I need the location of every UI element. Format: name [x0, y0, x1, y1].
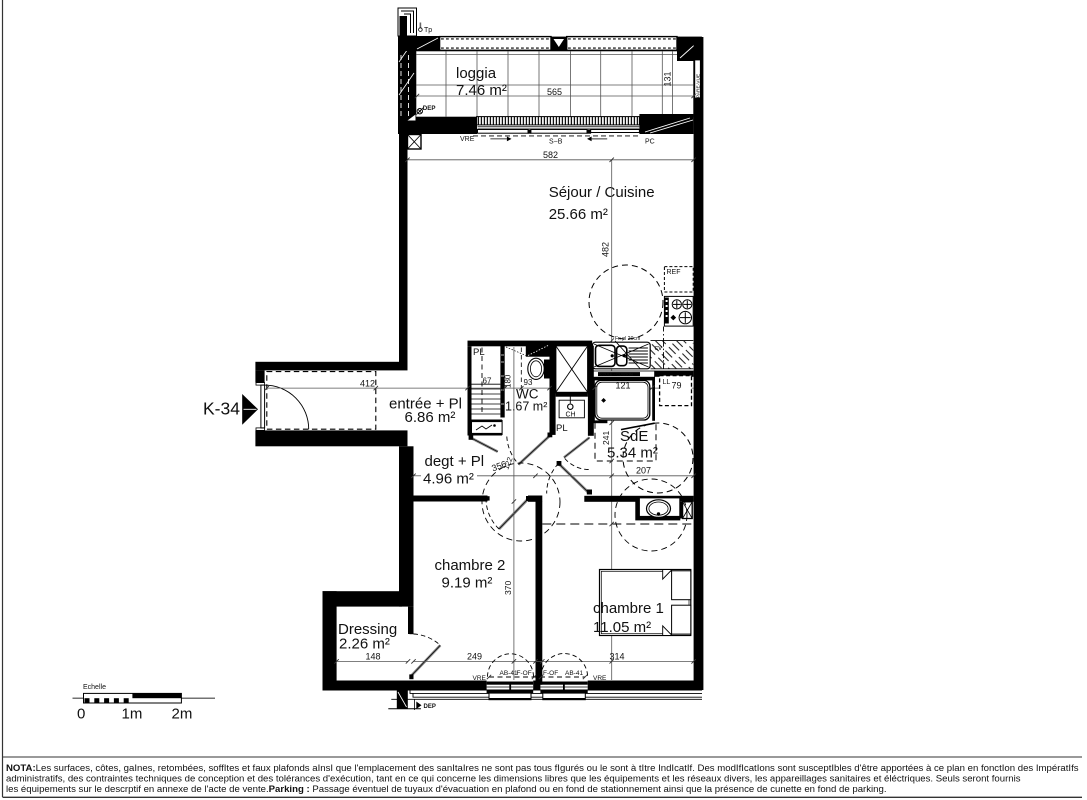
svg-text:VRE: VRE — [473, 675, 487, 682]
svg-text:cv: cv — [655, 343, 663, 352]
svg-text:administratifs, des contrainte: administratifs, des contraintes techniqu… — [6, 774, 1021, 785]
svg-text:K-34: K-34 — [203, 399, 240, 419]
svg-text:AB-41: AB-41 — [565, 670, 583, 677]
svg-text:PL: PL — [473, 347, 485, 358]
svg-text:S−B: S−B — [549, 139, 563, 146]
svg-text:241: 241 — [601, 431, 611, 445]
svg-text:AB-41: AB-41 — [500, 670, 518, 677]
svg-text:9.19 m²: 9.19 m² — [442, 575, 493, 592]
svg-text:565: 565 — [547, 87, 562, 97]
svg-text:11.05 m²: 11.05 m² — [593, 619, 651, 636]
svg-text:121: 121 — [616, 381, 631, 391]
svg-text:F-OF: F-OF — [543, 670, 558, 677]
svg-text:PARE-VUE: PARE-VUE — [696, 74, 702, 98]
svg-text:582: 582 — [543, 150, 558, 160]
svg-text:VRE: VRE — [593, 675, 607, 682]
svg-text:COULE – CUISSON: COULE – CUISSON — [600, 373, 633, 377]
svg-text:REF: REF — [667, 269, 681, 276]
svg-text:249: 249 — [467, 652, 482, 662]
svg-text:2.26 m²: 2.26 m² — [339, 636, 390, 653]
svg-text:les équipements sur le descrpt: les équipements sur le descrptif en anne… — [6, 784, 887, 795]
svg-text:412: 412 — [360, 378, 375, 388]
svg-text:67: 67 — [483, 377, 492, 386]
svg-text:2m: 2m — [172, 706, 193, 723]
svg-text:131: 131 — [663, 71, 673, 86]
svg-text:5.34 m²: 5.34 m² — [607, 445, 658, 462]
svg-text:chambre 1: chambre 1 — [593, 600, 664, 617]
svg-text:CH: CH — [566, 412, 576, 419]
svg-text:1.67 m²: 1.67 m² — [505, 400, 547, 414]
svg-text:F-OF: F-OF — [517, 670, 532, 677]
svg-text:25.66 m²: 25.66 m² — [549, 206, 608, 223]
svg-text:LL: LL — [663, 379, 671, 386]
svg-text:chambre 2: chambre 2 — [435, 557, 506, 574]
svg-text:7.46 m²: 7.46 m² — [456, 82, 507, 99]
svg-text:180: 180 — [504, 374, 513, 388]
svg-text:314: 314 — [610, 652, 625, 662]
svg-text:VRE: VRE — [460, 136, 475, 143]
svg-text:DEP: DEP — [423, 105, 436, 112]
svg-text:4.96 m²: 4.96 m² — [423, 471, 474, 488]
svg-text:482: 482 — [601, 242, 611, 257]
svg-text:SdE: SdE — [620, 428, 648, 445]
svg-text:1m: 1m — [122, 706, 143, 723]
svg-text:Echelle: Echelle — [83, 684, 106, 691]
svg-text:degt + Pl: degt + Pl — [425, 453, 485, 470]
svg-text:NOTA:Les surfaces, côtes, gaIn: NOTA:Les surfaces, côtes, gaInes, retomb… — [6, 763, 1079, 774]
svg-text:Séjour / Cuisine: Séjour / Cuisine — [549, 184, 655, 201]
svg-text:Tp: Tp — [424, 27, 432, 34]
svg-text:loggia: loggia — [456, 65, 497, 82]
svg-text:PL: PL — [556, 423, 568, 434]
svg-text:6.86 m²: 6.86 m² — [405, 409, 456, 426]
svg-text:DEP: DEP — [424, 704, 436, 710]
svg-text:0: 0 — [77, 706, 85, 723]
svg-text:207: 207 — [636, 466, 651, 476]
svg-text:370: 370 — [503, 581, 513, 595]
svg-text:148: 148 — [366, 652, 381, 662]
svg-text:Fx pl 20cm: Fx pl 20cm — [615, 336, 640, 342]
svg-text:79: 79 — [672, 381, 682, 391]
svg-text:PC: PC — [645, 139, 655, 146]
